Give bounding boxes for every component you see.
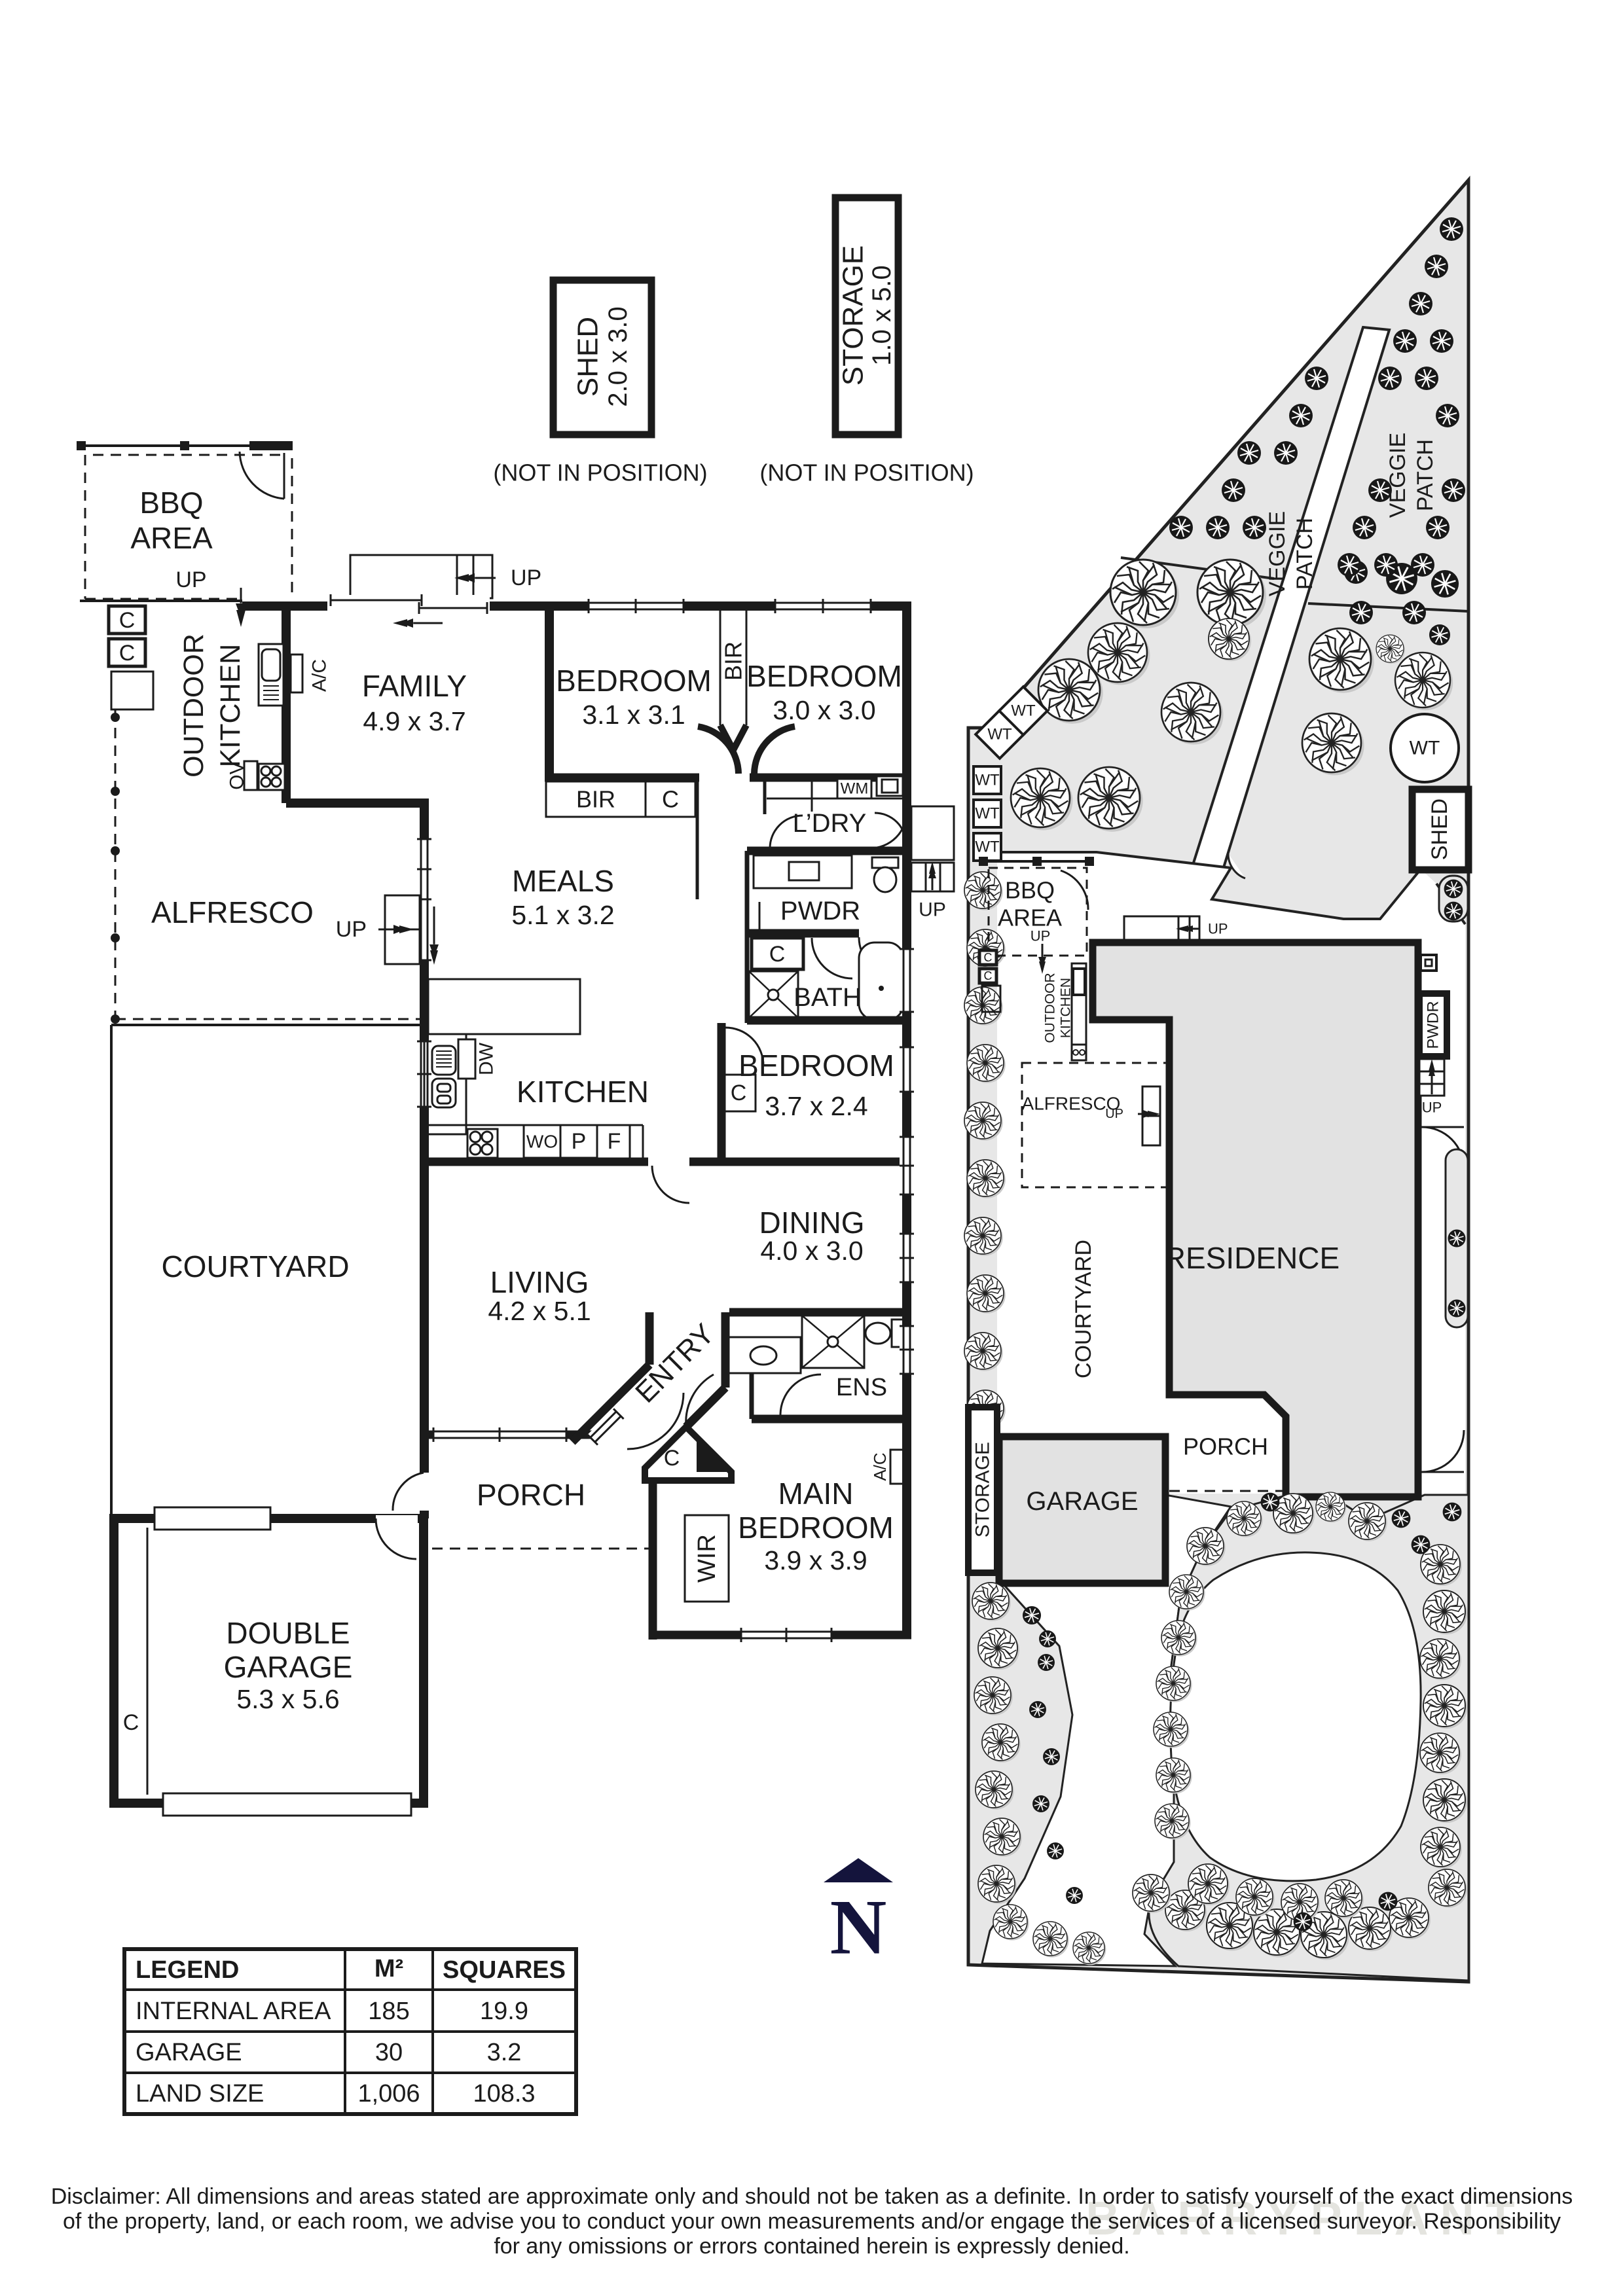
svg-text:KITCHEN: KITCHEN [517, 1075, 649, 1109]
svg-text:F: F [608, 1129, 621, 1154]
svg-text:PWDR: PWDR [780, 897, 860, 925]
svg-text:LEGEND: LEGEND [136, 1956, 239, 1984]
svg-text:LIVING: LIVING [490, 1265, 589, 1299]
svg-text:COURTYARD: COURTYARD [161, 1249, 349, 1283]
svg-text:108.3: 108.3 [473, 2080, 535, 2108]
svg-text:(NOT IN POSITION): (NOT IN POSITION) [759, 459, 974, 486]
svg-text:UP: UP [1208, 921, 1228, 937]
svg-text:L’DRY: L’DRY [793, 809, 867, 838]
svg-text:C: C [119, 608, 136, 633]
svg-text:OUTDOOR: OUTDOOR [178, 634, 210, 778]
svg-text:PWDR: PWDR [1425, 1001, 1442, 1049]
svg-text:UP: UP [175, 567, 206, 592]
svg-text:BEDROOM: BEDROOM [746, 659, 902, 693]
svg-text:WM: WM [841, 780, 869, 798]
svg-text:19.9: 19.9 [480, 1998, 528, 2025]
svg-text:DW: DW [476, 1042, 498, 1075]
svg-text:UP: UP [511, 565, 541, 590]
svg-text:4.9 x 3.7: 4.9 x 3.7 [363, 706, 465, 736]
svg-text:A/C: A/C [309, 659, 331, 692]
svg-text:BBQ: BBQ [1005, 877, 1055, 904]
svg-text:BIR: BIR [576, 786, 615, 813]
svg-text:P: P [572, 1129, 587, 1154]
svg-text:UP: UP [1422, 1100, 1442, 1116]
svg-text:DINING: DINING [759, 1206, 865, 1240]
svg-text:WT: WT [1011, 702, 1036, 720]
svg-text:STORAGE: STORAGE [837, 245, 869, 386]
svg-text:C: C [662, 786, 679, 813]
svg-text:of the property, land, or each: of the property, land, or each room, we … [63, 2209, 1561, 2234]
svg-text:BEDROOM: BEDROOM [556, 664, 712, 698]
svg-text:SHED: SHED [572, 317, 604, 397]
svg-text:3.2: 3.2 [487, 2039, 522, 2066]
svg-text:WT: WT [1410, 738, 1440, 759]
svg-text:C: C [731, 1081, 747, 1105]
svg-text:(NOT IN POSITION): (NOT IN POSITION) [493, 459, 707, 486]
svg-text:C: C [123, 1710, 139, 1735]
svg-text:BBQ: BBQ [139, 486, 203, 520]
svg-text:PORCH: PORCH [477, 1478, 585, 1512]
svg-text:SQUARES: SQUARES [443, 1956, 566, 1984]
svg-text:AREA: AREA [998, 905, 1062, 931]
svg-text:RESIDENCE: RESIDENCE [1164, 1241, 1340, 1275]
svg-text:3.7 x 2.4: 3.7 x 2.4 [765, 1091, 867, 1121]
svg-text:N: N [830, 1884, 887, 1971]
svg-text:C: C [984, 951, 993, 964]
svg-text:1,006: 1,006 [357, 2080, 420, 2108]
svg-text:AREA: AREA [130, 521, 213, 555]
svg-text:3.0 x 3.0: 3.0 x 3.0 [773, 695, 875, 725]
svg-text:4.2 x 5.1: 4.2 x 5.1 [488, 1296, 591, 1326]
svg-text:C: C [664, 1446, 680, 1471]
svg-text:185: 185 [368, 1998, 409, 2025]
svg-text:OUTDOOR: OUTDOOR [1043, 973, 1058, 1043]
svg-text:GARAGE: GARAGE [136, 2039, 242, 2066]
svg-text:1.0 x 5.0: 1.0 x 5.0 [867, 265, 896, 365]
svg-text:PATCH: PATCH [1413, 439, 1438, 511]
svg-text:ALFRESCO: ALFRESCO [151, 895, 314, 929]
svg-text:STORAGE: STORAGE [972, 1442, 994, 1537]
svg-text:BATH: BATH [793, 983, 862, 1012]
svg-text:Disclaimer: All dimensions and: Disclaimer: All dimensions and areas sta… [51, 2184, 1573, 2209]
svg-text:WT: WT [987, 726, 1012, 744]
svg-text:WT: WT [975, 838, 1000, 856]
svg-text:M²: M² [374, 1955, 403, 1982]
svg-text:UP: UP [1030, 928, 1051, 944]
svg-text:MEALS: MEALS [512, 864, 614, 898]
svg-text:UP: UP [1105, 1107, 1123, 1121]
svg-text:WT: WT [975, 805, 1000, 823]
svg-text:OV: OV [227, 761, 248, 789]
svg-text:BEDROOM: BEDROOM [739, 1049, 894, 1083]
svg-text:WO: WO [526, 1132, 558, 1152]
svg-text:C: C [984, 969, 993, 982]
svg-text:3.1 x 3.1: 3.1 x 3.1 [582, 700, 685, 730]
svg-text:PORCH: PORCH [1183, 1433, 1268, 1460]
svg-text:INTERNAL AREA: INTERNAL AREA [136, 1998, 331, 2025]
svg-text:30: 30 [375, 2039, 403, 2066]
svg-text:5.1 x 3.2: 5.1 x 3.2 [511, 900, 614, 930]
svg-text:UP: UP [336, 917, 367, 942]
svg-text:KITCHEN: KITCHEN [1059, 978, 1074, 1038]
svg-text:UP: UP [919, 899, 946, 921]
svg-text:BEDROOM: BEDROOM [738, 1511, 894, 1545]
svg-text:BIR: BIR [720, 641, 747, 681]
svg-text:2.0 x 3.0: 2.0 x 3.0 [604, 306, 632, 406]
svg-text:COURTYARD: COURTYARD [1071, 1240, 1096, 1378]
svg-text:C: C [119, 641, 136, 666]
svg-text:VEGGIE: VEGGIE [1265, 511, 1290, 596]
svg-text:3.9 x 3.9: 3.9 x 3.9 [764, 1545, 867, 1575]
svg-text:MAIN: MAIN [778, 1477, 854, 1511]
svg-text:A/C: A/C [870, 1452, 890, 1480]
svg-text:5.3 x 5.6: 5.3 x 5.6 [236, 1684, 339, 1714]
svg-text:DOUBLE: DOUBLE [226, 1616, 350, 1650]
svg-text:KITCHEN: KITCHEN [215, 644, 246, 768]
svg-text:GARAGE: GARAGE [1026, 1487, 1138, 1516]
svg-text:SHED: SHED [1427, 798, 1452, 860]
svg-text:WT: WT [975, 772, 1000, 789]
svg-text:ENS: ENS [836, 1374, 887, 1401]
svg-text:WIR: WIR [693, 1534, 721, 1583]
svg-text:4.0 x 3.0: 4.0 x 3.0 [760, 1236, 863, 1266]
svg-text:FAMILY: FAMILY [362, 669, 467, 703]
svg-text:GARAGE: GARAGE [224, 1650, 353, 1684]
svg-text:PATCH: PATCH [1292, 518, 1317, 590]
svg-text:LAND SIZE: LAND SIZE [136, 2080, 264, 2108]
svg-text:VEGGIE: VEGGIE [1385, 433, 1410, 518]
svg-text:for any omissions or errors co: for any omissions or errors contained he… [494, 2234, 1129, 2259]
svg-text:C: C [769, 942, 786, 967]
